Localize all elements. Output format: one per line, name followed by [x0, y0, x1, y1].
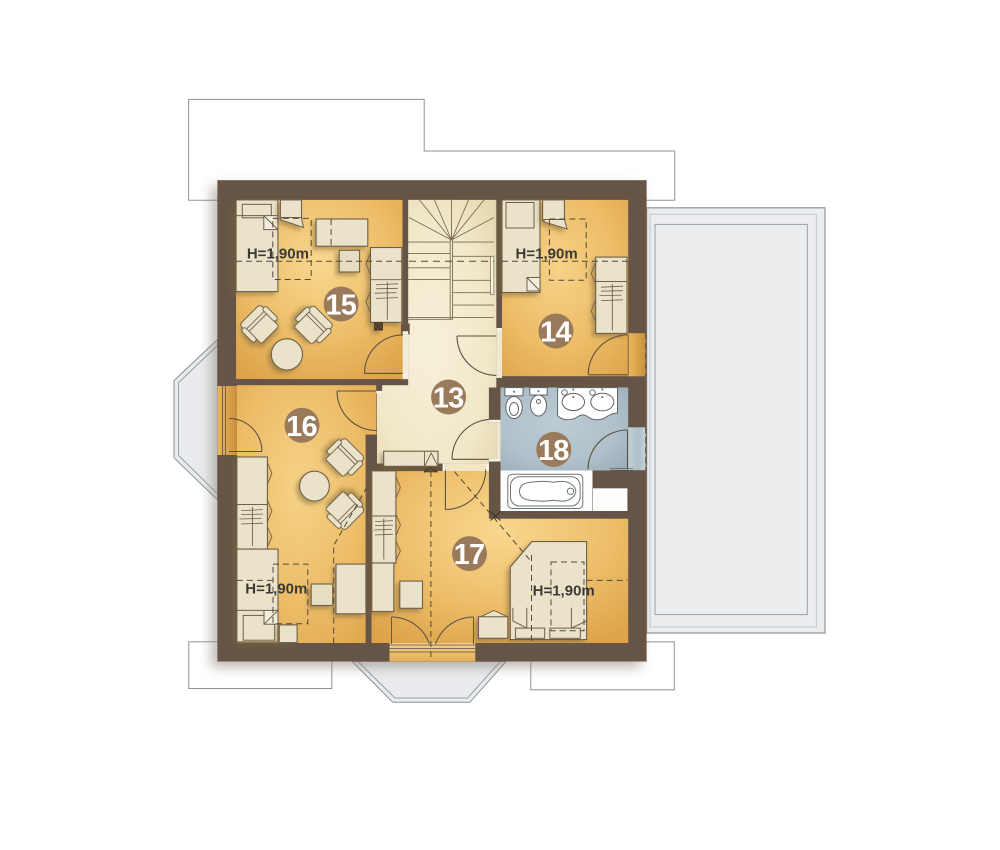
svg-text:18: 18: [538, 435, 569, 467]
svg-text:16: 16: [286, 411, 317, 443]
svg-text:17: 17: [454, 539, 485, 571]
svg-text:14: 14: [540, 317, 571, 349]
svg-text:H=1,90m: H=1,90m: [516, 245, 578, 262]
svg-text:15: 15: [325, 290, 356, 322]
svg-text:H=1,90m: H=1,90m: [533, 583, 595, 600]
svg-text:H=1,90m: H=1,90m: [247, 245, 309, 262]
svg-text:H=1,90m: H=1,90m: [245, 580, 307, 597]
svg-text:13: 13: [433, 383, 464, 415]
